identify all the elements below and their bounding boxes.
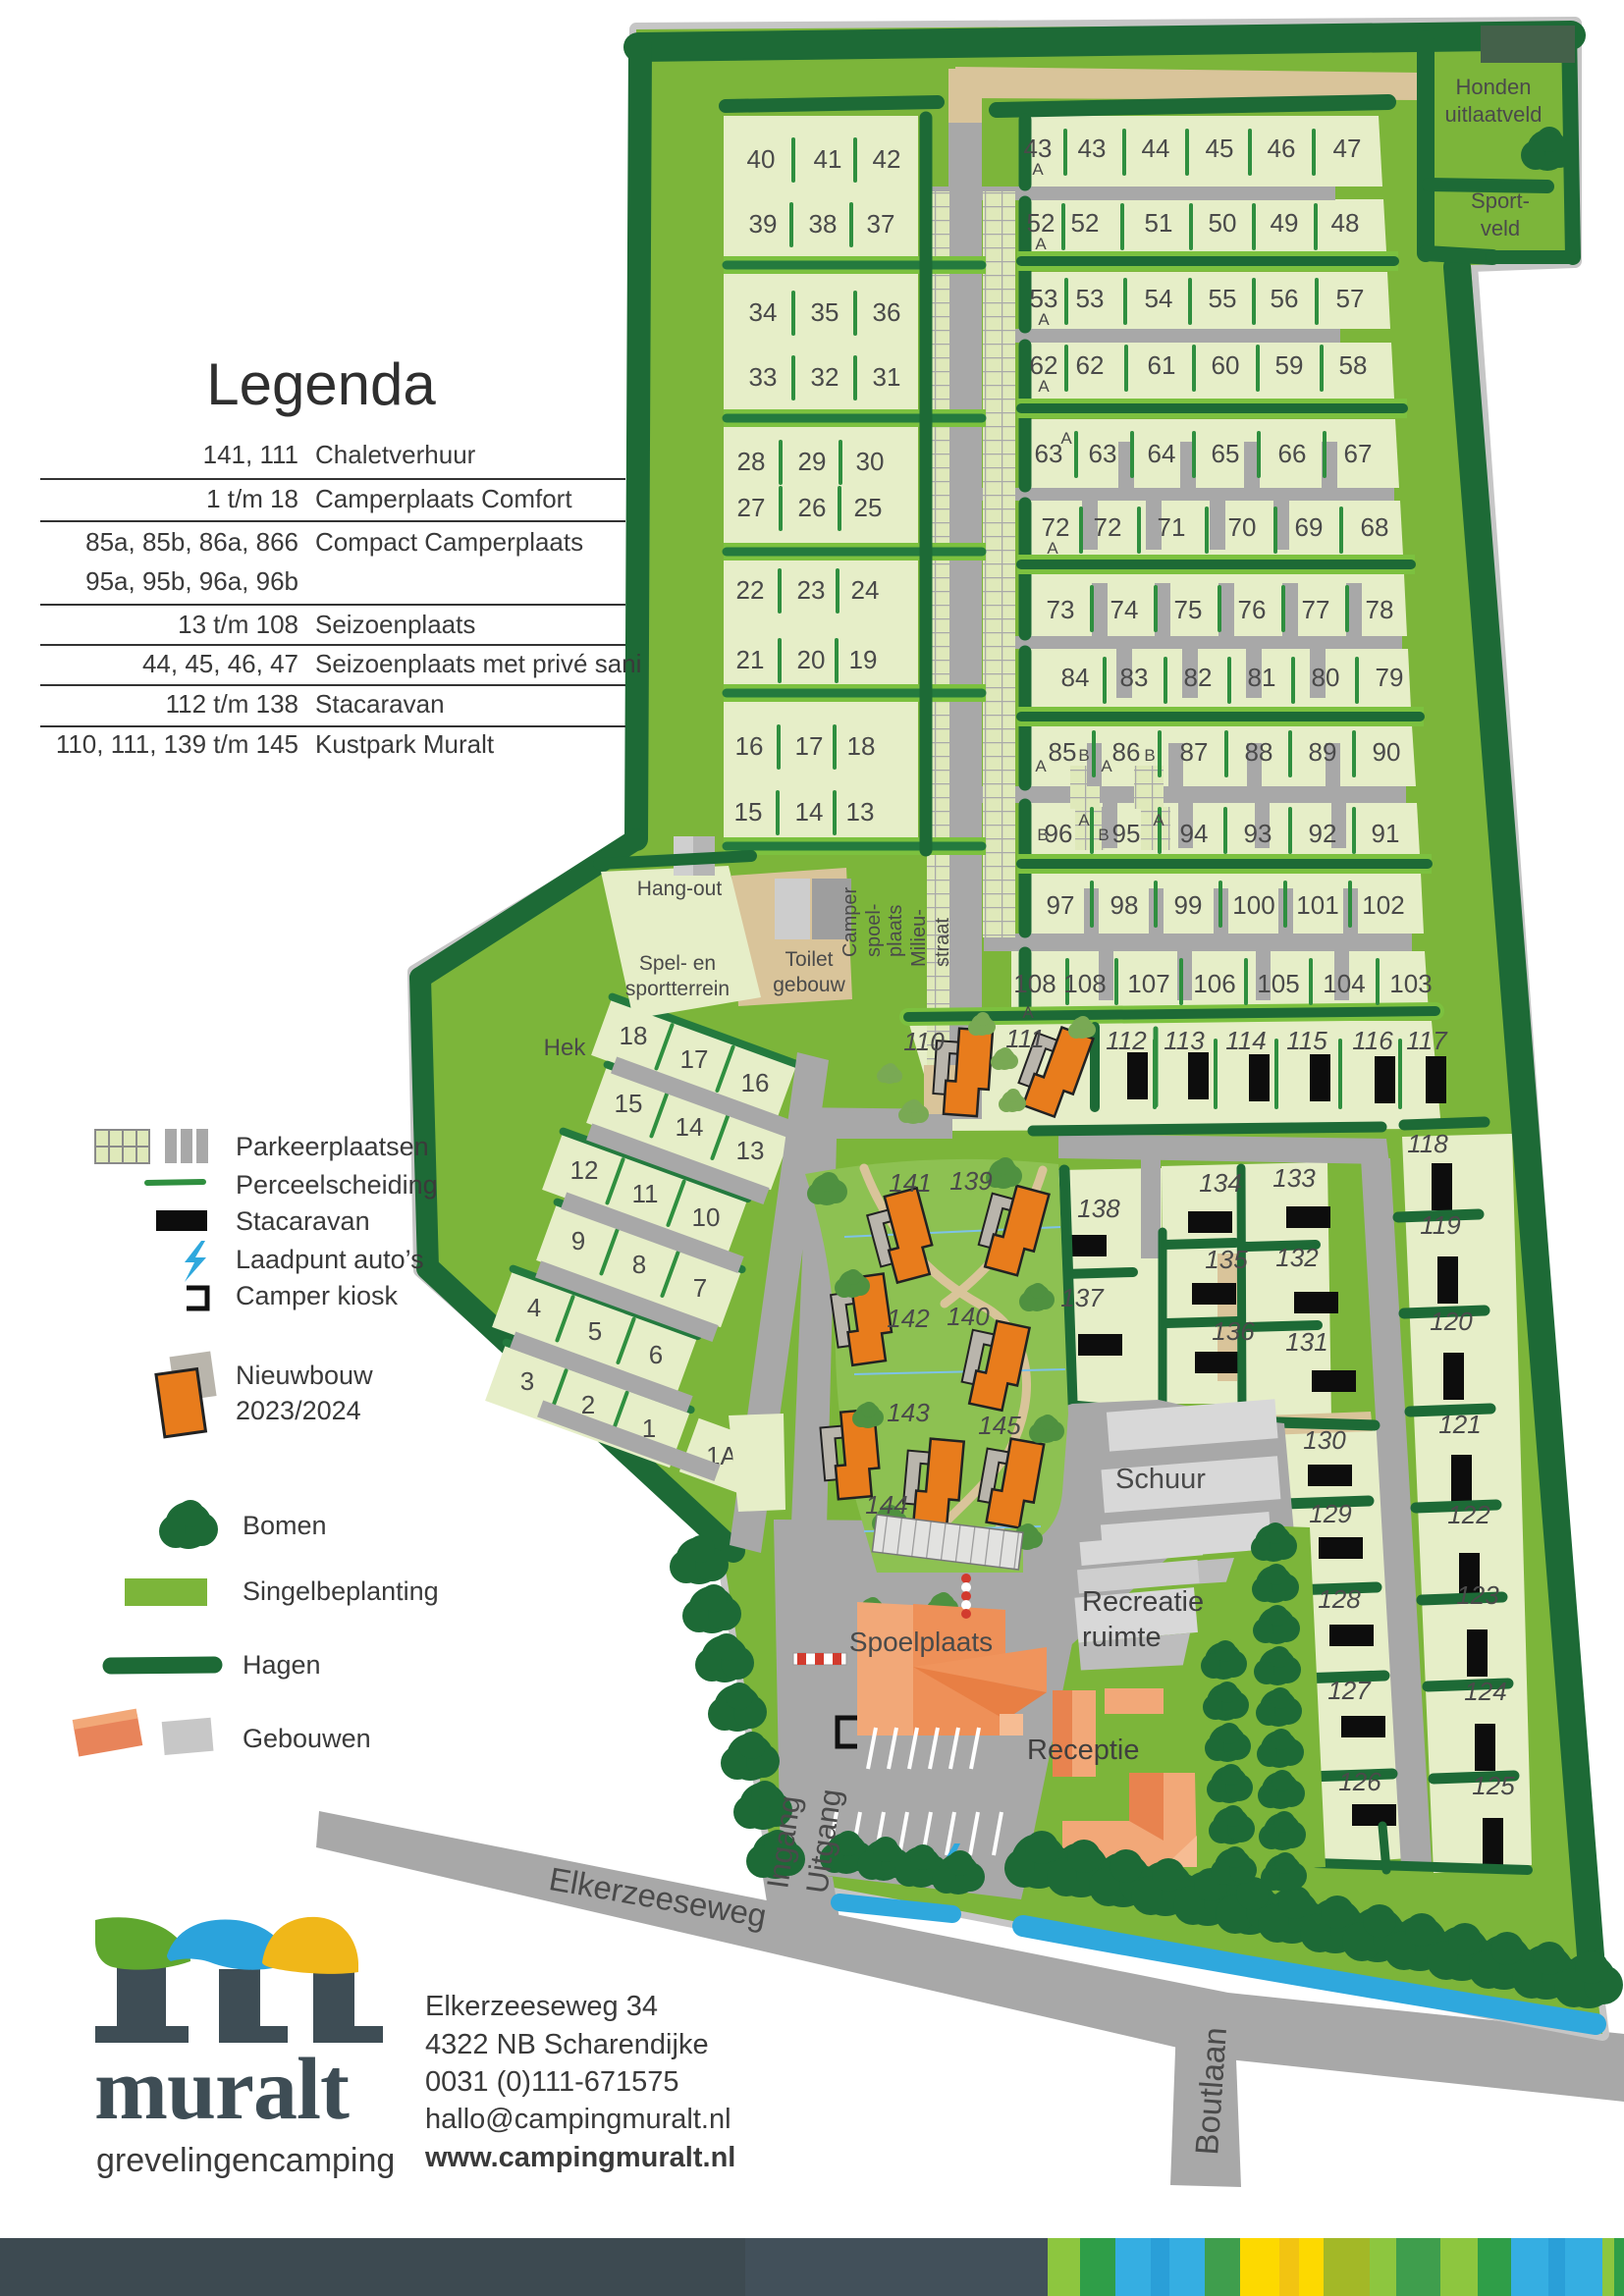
svg-text:Singelbeplanting: Singelbeplanting bbox=[243, 1576, 439, 1606]
svg-text:99: 99 bbox=[1174, 890, 1203, 920]
svg-text:45: 45 bbox=[1206, 133, 1234, 163]
svg-text:5: 5 bbox=[588, 1316, 602, 1346]
svg-text:85a, 85b, 86a, 866: 85a, 85b, 86a, 866 bbox=[85, 527, 298, 557]
svg-text:Hang-out: Hang-out bbox=[637, 878, 723, 900]
svg-text:141: 141 bbox=[889, 1168, 931, 1198]
svg-text:69: 69 bbox=[1295, 512, 1324, 542]
svg-text:31: 31 bbox=[873, 362, 901, 392]
svg-text:123: 123 bbox=[1456, 1580, 1499, 1610]
svg-text:79: 79 bbox=[1376, 663, 1404, 692]
svg-text:B: B bbox=[1037, 826, 1048, 844]
svg-text:111: 111 bbox=[1005, 1024, 1045, 1053]
svg-text:Bomen: Bomen bbox=[243, 1511, 327, 1540]
svg-text:4: 4 bbox=[527, 1293, 541, 1322]
svg-text:130: 130 bbox=[1303, 1425, 1346, 1455]
svg-text:102: 102 bbox=[1362, 890, 1404, 920]
svg-text:85: 85 bbox=[1049, 737, 1077, 767]
svg-text:A: A bbox=[1022, 1003, 1034, 1022]
svg-text:34: 34 bbox=[749, 297, 778, 327]
svg-text:Stacaravan: Stacaravan bbox=[236, 1206, 370, 1236]
svg-text:62: 62 bbox=[1030, 350, 1058, 380]
svg-text:38: 38 bbox=[809, 209, 838, 239]
svg-text:Chaletverhuur: Chaletverhuur bbox=[315, 440, 476, 469]
svg-text:134: 134 bbox=[1199, 1168, 1241, 1198]
svg-text:70: 70 bbox=[1228, 512, 1257, 542]
svg-text:13 t/m 108: 13 t/m 108 bbox=[178, 610, 298, 639]
svg-text:143: 143 bbox=[887, 1398, 930, 1427]
svg-text:114: 114 bbox=[1225, 1026, 1266, 1055]
svg-text:53: 53 bbox=[1076, 284, 1105, 313]
svg-text:26: 26 bbox=[798, 493, 827, 522]
svg-text:87: 87 bbox=[1180, 737, 1209, 767]
svg-text:Toilet: Toilet bbox=[785, 948, 833, 971]
svg-text:140: 140 bbox=[947, 1302, 990, 1331]
svg-text:sportterrein: sportterrein bbox=[625, 978, 730, 1000]
svg-text:133: 133 bbox=[1272, 1163, 1316, 1193]
svg-text:Receptie: Receptie bbox=[1027, 1735, 1139, 1766]
svg-text:43: 43 bbox=[1078, 133, 1107, 163]
svg-text:83: 83 bbox=[1120, 663, 1149, 692]
svg-text:A: A bbox=[1038, 377, 1050, 396]
svg-text:78: 78 bbox=[1366, 595, 1394, 624]
svg-text:124: 124 bbox=[1464, 1677, 1506, 1706]
svg-text:142: 142 bbox=[887, 1304, 930, 1333]
svg-text:27: 27 bbox=[737, 493, 766, 522]
svg-text:52: 52 bbox=[1071, 208, 1100, 238]
svg-text:96: 96 bbox=[1045, 819, 1073, 848]
svg-text:17: 17 bbox=[795, 731, 824, 761]
svg-text:A: A bbox=[1060, 429, 1072, 448]
svg-text:44, 45, 46, 47: 44, 45, 46, 47 bbox=[142, 649, 298, 678]
svg-text:Gebouwen: Gebouwen bbox=[243, 1724, 371, 1753]
svg-text:39: 39 bbox=[749, 209, 778, 239]
svg-text:86: 86 bbox=[1112, 737, 1141, 767]
svg-text:72: 72 bbox=[1042, 512, 1070, 542]
svg-text:75: 75 bbox=[1174, 595, 1203, 624]
svg-text:63: 63 bbox=[1089, 439, 1117, 468]
svg-text:68: 68 bbox=[1361, 512, 1389, 542]
svg-text:108: 108 bbox=[1013, 969, 1056, 998]
svg-text:Sport-: Sport- bbox=[1471, 188, 1530, 213]
svg-text:103: 103 bbox=[1389, 969, 1432, 998]
svg-text:42: 42 bbox=[873, 144, 901, 174]
svg-text:53: 53 bbox=[1030, 284, 1058, 313]
svg-text:65: 65 bbox=[1212, 439, 1240, 468]
svg-text:1 t/m 18: 1 t/m 18 bbox=[206, 484, 298, 513]
svg-text:82: 82 bbox=[1184, 663, 1213, 692]
svg-text:Kustpark Muralt: Kustpark Muralt bbox=[315, 729, 495, 759]
svg-text:104: 104 bbox=[1323, 969, 1365, 998]
svg-text:A: A bbox=[1035, 757, 1047, 775]
svg-text:56: 56 bbox=[1271, 284, 1299, 313]
svg-text:55: 55 bbox=[1209, 284, 1237, 313]
svg-text:29: 29 bbox=[798, 447, 827, 476]
svg-text:Spel- en: Spel- en bbox=[639, 952, 716, 975]
svg-text:89: 89 bbox=[1309, 737, 1337, 767]
svg-text:59: 59 bbox=[1275, 350, 1304, 380]
svg-text:131: 131 bbox=[1285, 1327, 1327, 1357]
svg-text:74: 74 bbox=[1110, 595, 1139, 624]
svg-text:98: 98 bbox=[1110, 890, 1139, 920]
svg-text:43: 43 bbox=[1024, 133, 1053, 163]
svg-text:uitlaatveld: uitlaatveld bbox=[1444, 102, 1542, 127]
svg-text:141, 111: 141, 111 bbox=[203, 440, 298, 469]
svg-text:77: 77 bbox=[1302, 595, 1330, 624]
svg-text:28: 28 bbox=[737, 447, 766, 476]
svg-text:hallo@campingmuralt.nl: hallo@campingmuralt.nl bbox=[425, 2104, 731, 2135]
svg-text:Camperplaats Comfort: Camperplaats Comfort bbox=[315, 484, 572, 513]
svg-text:100: 100 bbox=[1232, 890, 1274, 920]
svg-text:17: 17 bbox=[680, 1044, 709, 1074]
svg-text:Stacaravan: Stacaravan bbox=[315, 689, 445, 719]
svg-text:54: 54 bbox=[1145, 284, 1173, 313]
svg-text:Spoelplaats: Spoelplaats bbox=[849, 1627, 993, 1657]
svg-text:Honden: Honden bbox=[1455, 75, 1531, 99]
svg-text:2023/2024: 2023/2024 bbox=[236, 1396, 361, 1425]
svg-text:63: 63 bbox=[1035, 439, 1063, 468]
svg-text:Legenda: Legenda bbox=[206, 351, 436, 417]
svg-text:36: 36 bbox=[873, 297, 901, 327]
svg-text:8: 8 bbox=[632, 1250, 646, 1279]
svg-text:40: 40 bbox=[747, 144, 776, 174]
svg-text:30: 30 bbox=[856, 447, 885, 476]
svg-text:33: 33 bbox=[749, 362, 778, 392]
svg-text:66: 66 bbox=[1278, 439, 1307, 468]
svg-text:95a, 95b, 96a, 96b: 95a, 95b, 96a, 96b bbox=[85, 566, 298, 596]
svg-text:115: 115 bbox=[1286, 1026, 1327, 1055]
svg-text:62: 62 bbox=[1076, 350, 1105, 380]
svg-text:119: 119 bbox=[1420, 1210, 1460, 1240]
svg-text:81: 81 bbox=[1248, 663, 1276, 692]
svg-text:A: A bbox=[1047, 539, 1058, 558]
svg-text:129: 129 bbox=[1309, 1499, 1351, 1528]
svg-text:101: 101 bbox=[1296, 890, 1338, 920]
svg-text:44: 44 bbox=[1142, 133, 1170, 163]
svg-text:145: 145 bbox=[978, 1411, 1021, 1440]
svg-text:18: 18 bbox=[847, 731, 876, 761]
svg-text:B: B bbox=[1098, 826, 1109, 844]
svg-text:B: B bbox=[1144, 746, 1155, 765]
svg-text:B: B bbox=[1078, 746, 1089, 765]
svg-text:125: 125 bbox=[1472, 1771, 1515, 1800]
svg-text:88: 88 bbox=[1245, 737, 1273, 767]
svg-text:16: 16 bbox=[741, 1068, 770, 1097]
svg-text:49: 49 bbox=[1271, 208, 1299, 238]
svg-text:90: 90 bbox=[1373, 737, 1401, 767]
svg-text:A: A bbox=[1078, 811, 1090, 829]
svg-text:92: 92 bbox=[1309, 819, 1337, 848]
svg-text:9: 9 bbox=[571, 1226, 585, 1255]
svg-text:13: 13 bbox=[736, 1136, 765, 1165]
svg-text:93: 93 bbox=[1244, 819, 1272, 848]
svg-text:95: 95 bbox=[1112, 819, 1141, 848]
svg-text:105: 105 bbox=[1257, 969, 1299, 998]
svg-text:52: 52 bbox=[1027, 208, 1056, 238]
svg-text:14: 14 bbox=[676, 1112, 704, 1142]
svg-text:122: 122 bbox=[1447, 1500, 1490, 1529]
svg-text:Hagen: Hagen bbox=[243, 1650, 321, 1680]
svg-text:Hek: Hek bbox=[544, 1035, 587, 1061]
svg-text:Schuur: Schuur bbox=[1115, 1464, 1206, 1495]
svg-text:110, 111, 139 t/m 145: 110, 111, 139 t/m 145 bbox=[56, 729, 298, 759]
svg-text:71: 71 bbox=[1158, 512, 1186, 542]
svg-text:Parkeerplaatsen: Parkeerplaatsen bbox=[236, 1132, 429, 1161]
svg-text:Perceelscheiding: Perceelscheiding bbox=[236, 1170, 438, 1200]
svg-text:ruimte: ruimte bbox=[1082, 1622, 1162, 1653]
svg-text:20: 20 bbox=[797, 645, 826, 674]
svg-text:Compact Camperplaats: Compact Camperplaats bbox=[315, 527, 583, 557]
svg-text:13: 13 bbox=[846, 797, 875, 827]
svg-text:61: 61 bbox=[1148, 350, 1176, 380]
svg-text:50: 50 bbox=[1209, 208, 1237, 238]
svg-text:37: 37 bbox=[867, 209, 895, 239]
svg-text:14: 14 bbox=[795, 797, 824, 827]
svg-text:A: A bbox=[1101, 757, 1112, 775]
svg-text:0031 (0)111-671575: 0031 (0)111-671575 bbox=[425, 2066, 679, 2098]
svg-text:25: 25 bbox=[854, 493, 883, 522]
svg-text:126: 126 bbox=[1338, 1767, 1381, 1796]
svg-text:97: 97 bbox=[1047, 890, 1075, 920]
svg-text:117: 117 bbox=[1406, 1026, 1448, 1055]
svg-text:spoel-: spoel- bbox=[863, 904, 885, 957]
svg-text:47: 47 bbox=[1333, 133, 1362, 163]
svg-text:112 t/m 138: 112 t/m 138 bbox=[166, 689, 298, 719]
svg-text:3: 3 bbox=[520, 1366, 534, 1396]
svg-text:139: 139 bbox=[949, 1166, 992, 1196]
svg-text:57: 57 bbox=[1336, 284, 1365, 313]
svg-text:23: 23 bbox=[797, 575, 826, 605]
svg-text:15: 15 bbox=[734, 797, 763, 827]
svg-text:19: 19 bbox=[849, 645, 878, 674]
svg-text:132: 132 bbox=[1275, 1243, 1319, 1272]
svg-text:67: 67 bbox=[1344, 439, 1373, 468]
svg-text:Camper: Camper bbox=[839, 887, 861, 957]
svg-text:118: 118 bbox=[1407, 1129, 1448, 1158]
svg-text:22: 22 bbox=[736, 575, 765, 605]
svg-text:A: A bbox=[1153, 811, 1164, 829]
svg-text:7: 7 bbox=[693, 1273, 707, 1303]
svg-text:144: 144 bbox=[865, 1490, 907, 1520]
svg-text:108: 108 bbox=[1063, 969, 1106, 998]
svg-text:Recreatie: Recreatie bbox=[1082, 1586, 1204, 1618]
svg-text:Camper kiosk: Camper kiosk bbox=[236, 1281, 399, 1310]
svg-text:32: 32 bbox=[811, 362, 839, 392]
svg-text:76: 76 bbox=[1238, 595, 1267, 624]
svg-text:128: 128 bbox=[1318, 1584, 1361, 1614]
svg-text:41: 41 bbox=[814, 144, 842, 174]
svg-text:60: 60 bbox=[1212, 350, 1240, 380]
svg-text:www.campingmuralt.nl: www.campingmuralt.nl bbox=[424, 2142, 735, 2173]
svg-text:Nieuwbouw: Nieuwbouw bbox=[236, 1361, 373, 1390]
svg-text:138: 138 bbox=[1077, 1194, 1120, 1223]
svg-text:6: 6 bbox=[649, 1340, 663, 1369]
svg-text:10: 10 bbox=[692, 1202, 721, 1232]
svg-text:91: 91 bbox=[1372, 819, 1400, 848]
svg-text:21: 21 bbox=[736, 645, 765, 674]
svg-text:80: 80 bbox=[1312, 663, 1340, 692]
svg-text:Laadpunt auto’s: Laadpunt auto’s bbox=[236, 1245, 424, 1274]
svg-text:136: 136 bbox=[1212, 1316, 1255, 1346]
svg-text:94: 94 bbox=[1180, 819, 1209, 848]
svg-text:46: 46 bbox=[1268, 133, 1296, 163]
svg-text:gebouw: gebouw bbox=[773, 974, 845, 996]
svg-text:Milieu-: Milieu- bbox=[908, 909, 930, 967]
svg-text:veld: veld bbox=[1481, 216, 1520, 240]
svg-text:51: 51 bbox=[1145, 208, 1173, 238]
svg-text:84: 84 bbox=[1061, 663, 1090, 692]
svg-text:64: 64 bbox=[1148, 439, 1176, 468]
svg-text:4322 NB Scharendijke: 4322 NB Scharendijke bbox=[425, 2029, 709, 2060]
svg-text:35: 35 bbox=[811, 297, 839, 327]
svg-text:12: 12 bbox=[570, 1155, 599, 1185]
svg-text:127: 127 bbox=[1327, 1676, 1372, 1705]
svg-text:A: A bbox=[1032, 160, 1044, 179]
svg-text:116: 116 bbox=[1352, 1026, 1393, 1055]
svg-text:A: A bbox=[1035, 235, 1047, 253]
svg-text:110: 110 bbox=[903, 1027, 945, 1056]
svg-text:73: 73 bbox=[1047, 595, 1075, 624]
svg-text:Seizoenplaats: Seizoenplaats bbox=[315, 610, 475, 639]
svg-text:72: 72 bbox=[1094, 512, 1122, 542]
svg-text:24: 24 bbox=[851, 575, 880, 605]
svg-text:plaats: plaats bbox=[885, 905, 906, 957]
svg-text:137: 137 bbox=[1060, 1283, 1105, 1312]
svg-text:muralt: muralt bbox=[94, 2041, 350, 2138]
svg-text:58: 58 bbox=[1339, 350, 1368, 380]
svg-text:A: A bbox=[1038, 310, 1050, 329]
svg-text:grevelingencamping: grevelingencamping bbox=[96, 2142, 395, 2179]
svg-text:Seizoenplaats met privé sani: Seizoenplaats met privé sani bbox=[315, 649, 641, 678]
svg-text:106: 106 bbox=[1193, 969, 1235, 998]
svg-text:113: 113 bbox=[1164, 1026, 1205, 1055]
svg-text:18: 18 bbox=[620, 1021, 648, 1050]
svg-text:straat: straat bbox=[932, 918, 953, 967]
svg-text:11: 11 bbox=[632, 1179, 659, 1208]
svg-text:Elkerzeeseweg 34: Elkerzeeseweg 34 bbox=[425, 1991, 658, 2022]
svg-text:107: 107 bbox=[1127, 969, 1169, 998]
svg-text:120: 120 bbox=[1430, 1307, 1473, 1336]
svg-text:15: 15 bbox=[615, 1089, 643, 1118]
svg-text:16: 16 bbox=[735, 731, 764, 761]
svg-text:48: 48 bbox=[1331, 208, 1360, 238]
svg-text:121: 121 bbox=[1438, 1410, 1481, 1439]
svg-text:135: 135 bbox=[1205, 1245, 1248, 1274]
svg-text:112: 112 bbox=[1106, 1026, 1147, 1055]
